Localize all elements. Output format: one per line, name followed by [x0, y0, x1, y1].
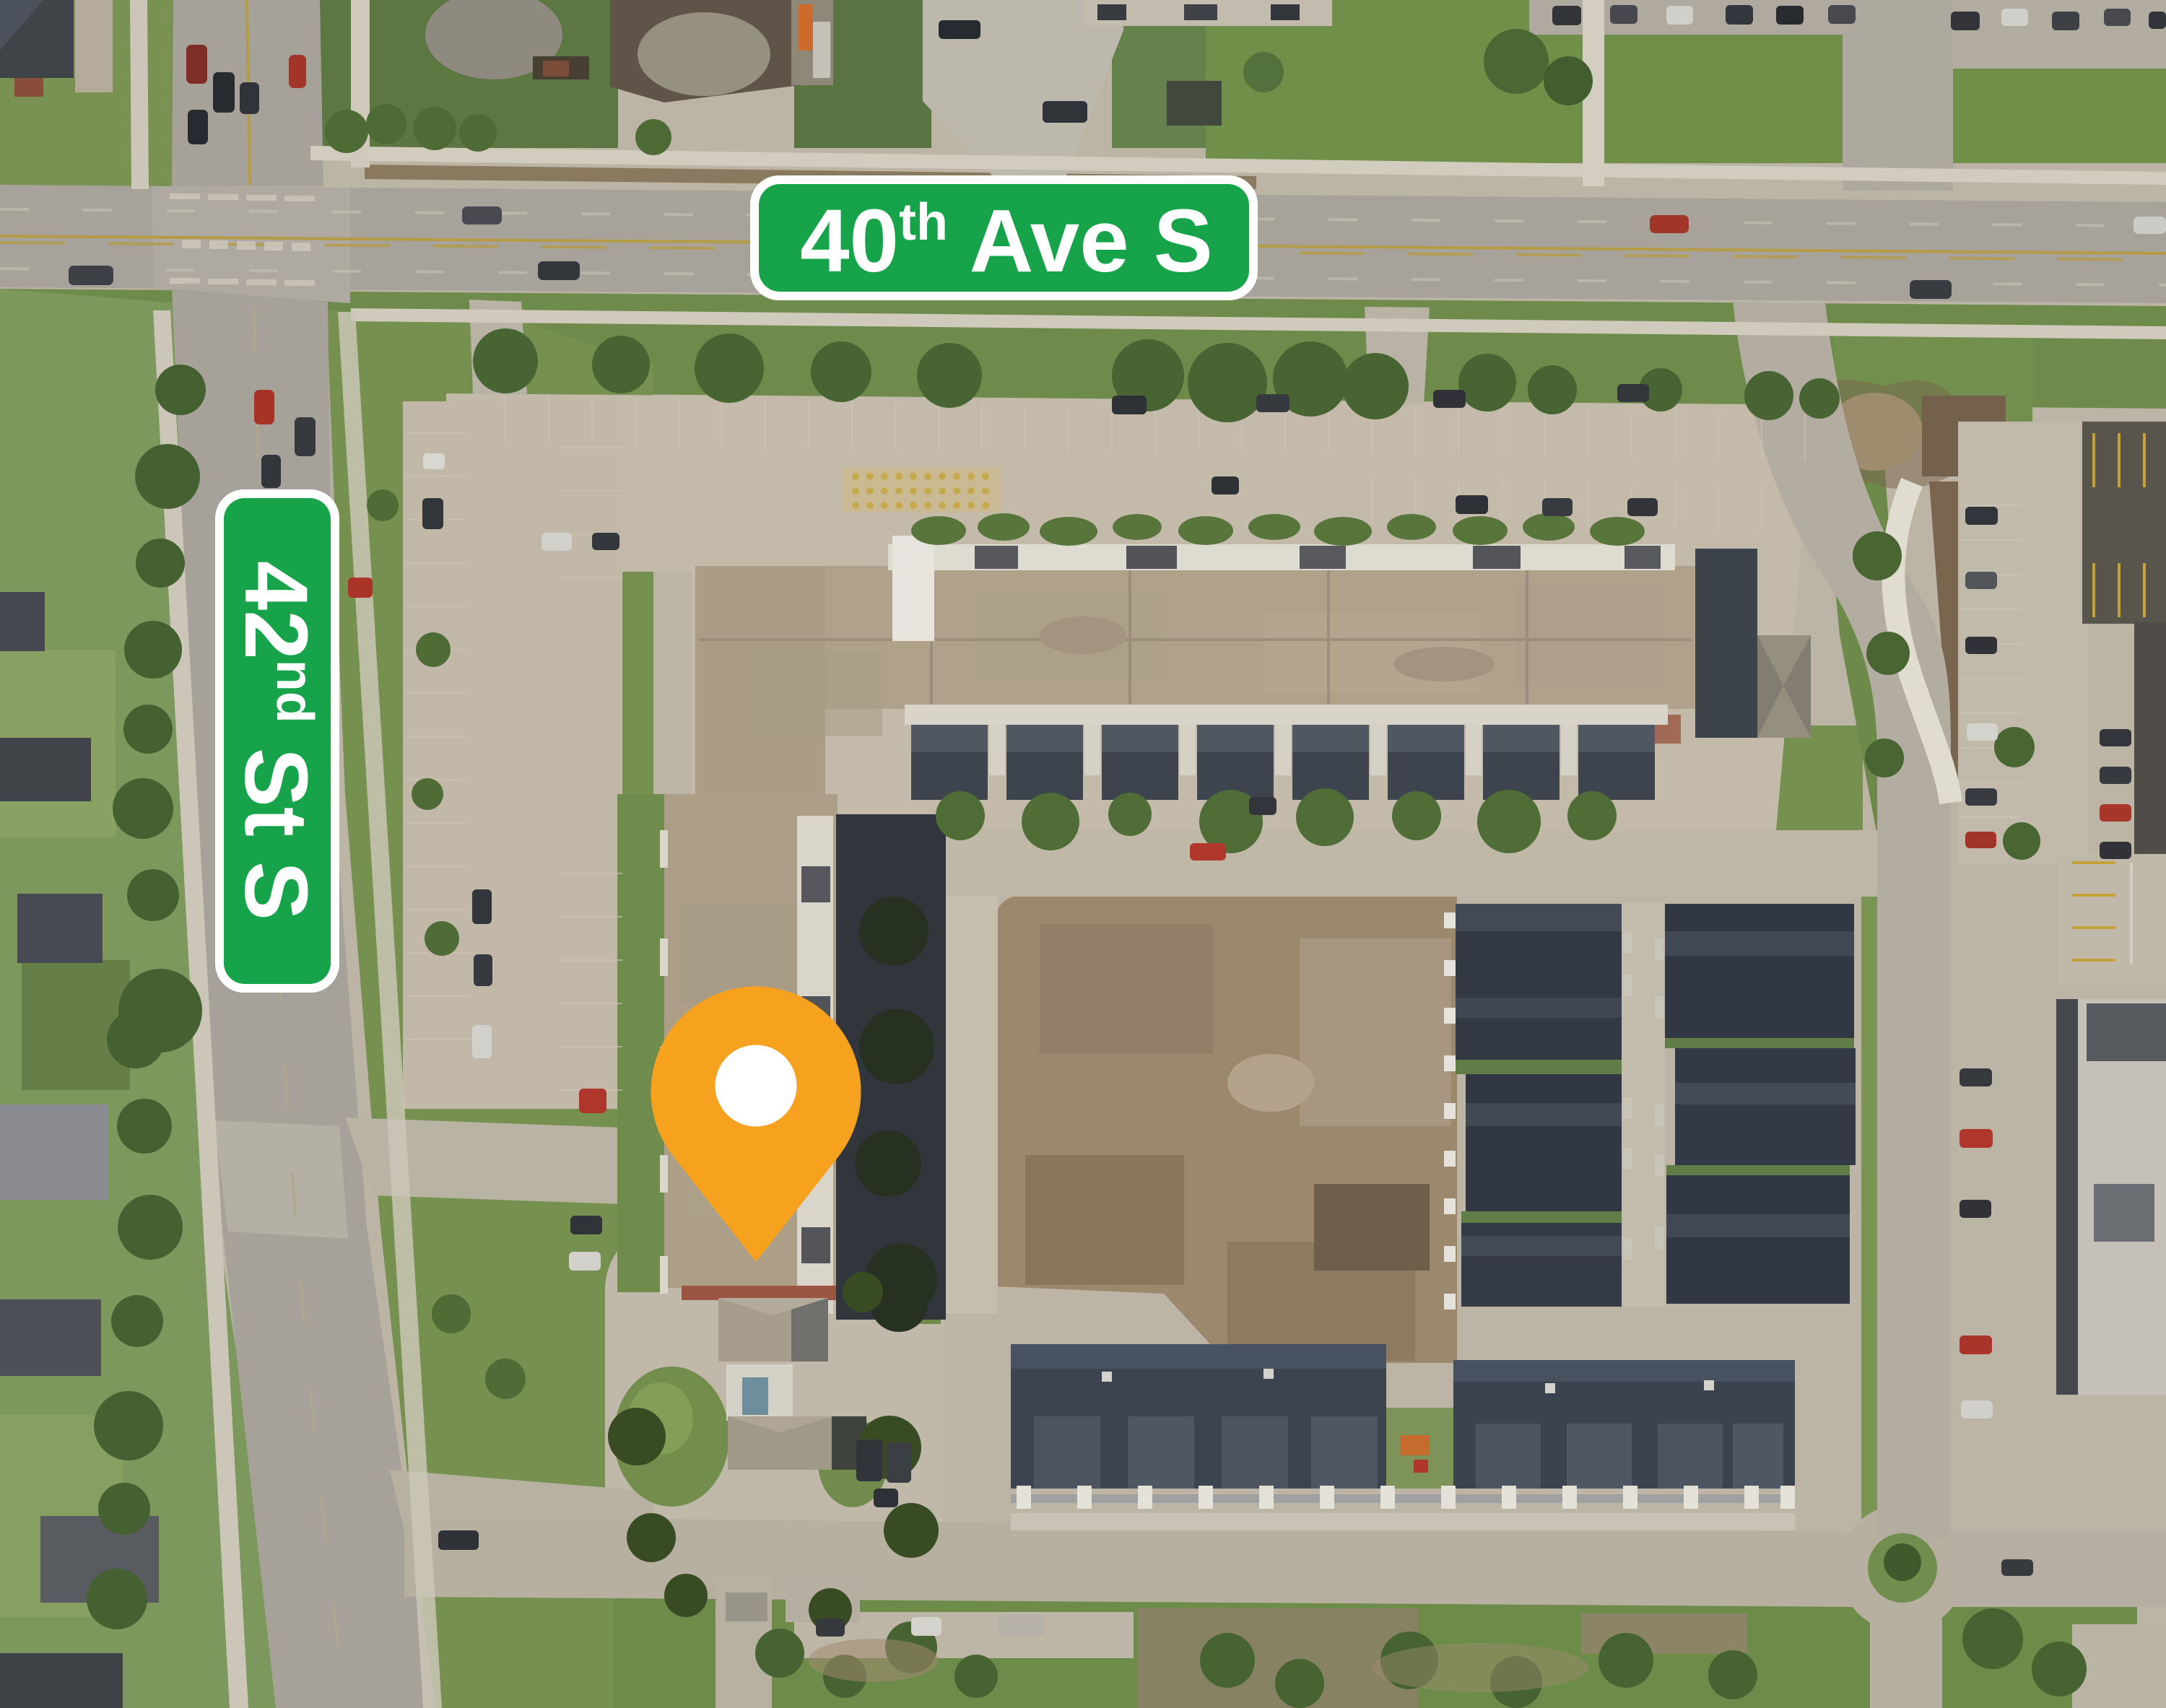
svg-text:40th Ave S: 40th Ave S: [800, 192, 1213, 291]
svg-text:42nd St S: 42nd St S: [226, 561, 325, 920]
